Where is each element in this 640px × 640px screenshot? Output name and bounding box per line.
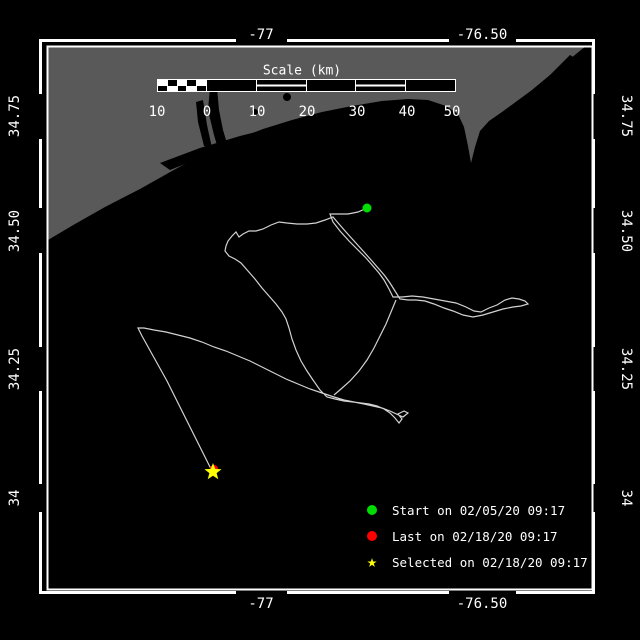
- lat-tick-label-right-1: 34.50: [618, 210, 634, 252]
- start-position-marker[interactable]: [363, 204, 372, 213]
- scale-bar: [157, 79, 456, 92]
- lat-tick-label-left-2: 34.25: [7, 348, 23, 390]
- scale-bar-title: Scale (km): [263, 64, 341, 79]
- legend-item-last: Last on 02/18/20 09:17: [364, 528, 558, 544]
- pond-water: [283, 93, 291, 101]
- scale-bar-segment: [257, 80, 307, 91]
- scale-tick-label-1: 0: [203, 104, 211, 120]
- selected-star-icon: ★: [364, 557, 380, 567]
- marsh-water: [386, 115, 398, 120]
- legend-label-selected: Selected on 02/18/20 09:17: [392, 555, 588, 570]
- scale-bar-segment: [207, 80, 257, 91]
- lat-tick-label-right-3: 34: [618, 490, 634, 507]
- scale-tick-label-0: 10: [149, 104, 166, 120]
- scale-bar-segment: [356, 80, 406, 91]
- scale-tick-label-4: 30: [349, 104, 366, 120]
- scale-bar-subdivisions: [158, 80, 207, 91]
- lon-tick-label-top-0: -77: [248, 27, 273, 43]
- scale-tick-label-2: 10: [249, 104, 266, 120]
- scale-tick-label-5: 40: [399, 104, 416, 120]
- track-plot-window: -77 -76.50 -77 -76.50 34.75 34.50 34.25 …: [0, 0, 640, 640]
- lat-tick-label-right-0: 34.75: [618, 95, 634, 137]
- legend-item-selected: ★ Selected on 02/18/20 09:17: [364, 554, 588, 570]
- legend-label-last: Last on 02/18/20 09:17: [392, 529, 558, 544]
- legend-item-start: Start on 02/05/20 09:17: [364, 502, 565, 518]
- legend-label-start: Start on 02/05/20 09:17: [392, 503, 565, 518]
- lon-tick-label-bottom-0: -77: [248, 596, 273, 612]
- map-canvas[interactable]: [0, 0, 640, 640]
- start-circle-icon: [364, 505, 380, 515]
- lat-tick-label-left-0: 34.75: [7, 95, 23, 137]
- scale-tick-label-3: 20: [299, 104, 316, 120]
- scale-bar-segment: [307, 80, 357, 91]
- lat-tick-label-left-1: 34.50: [7, 210, 23, 252]
- last-circle-icon: [364, 531, 380, 541]
- lat-tick-label-right-2: 34.25: [618, 348, 634, 390]
- marsh-water: [332, 119, 348, 125]
- scale-bar-segment: [406, 80, 455, 91]
- lon-tick-label-bottom-1: -76.50: [457, 596, 508, 612]
- lat-tick-label-left-3: 34: [7, 490, 23, 507]
- scale-tick-label-6: 50: [444, 104, 461, 120]
- lon-tick-label-top-1: -76.50: [457, 27, 508, 43]
